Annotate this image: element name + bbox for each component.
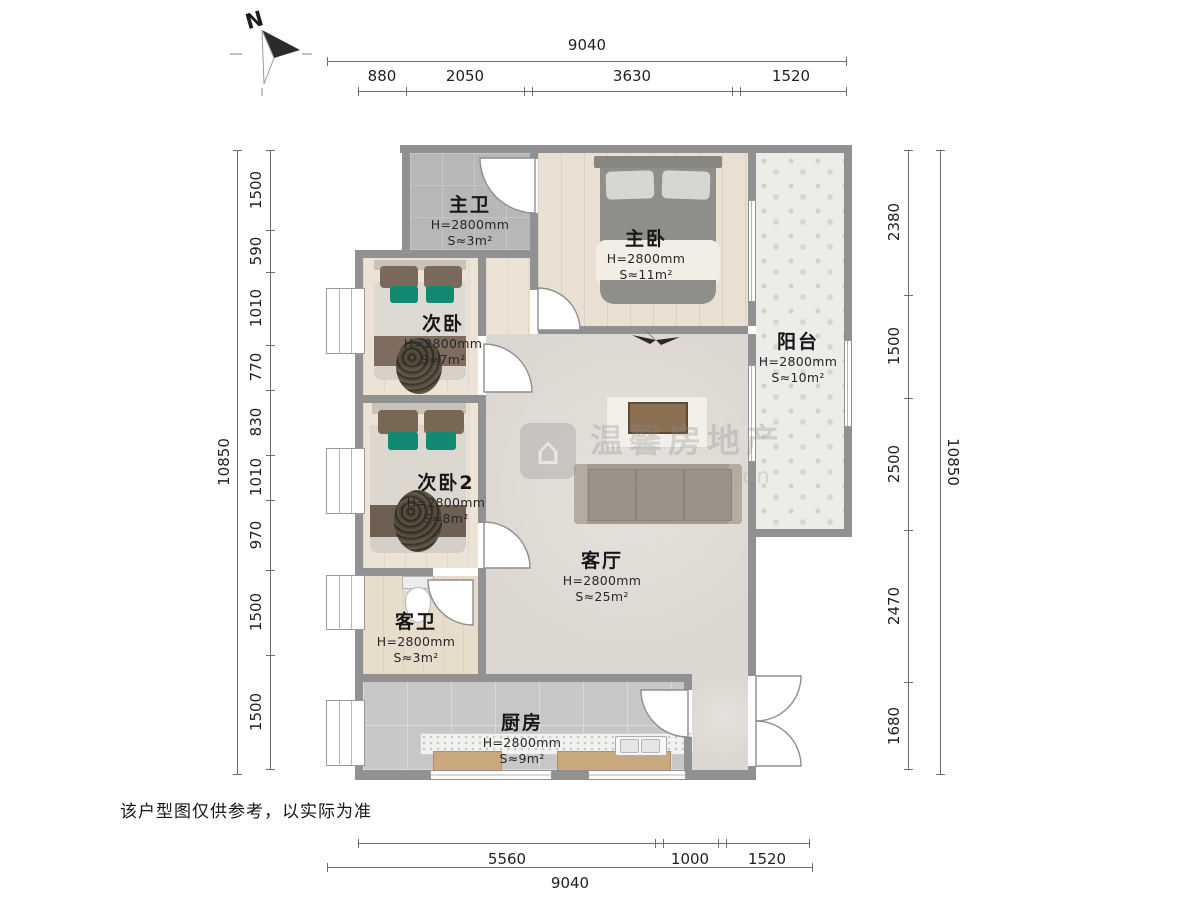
door-master-bedroom: [538, 288, 580, 330]
room-height: H=2800mm: [563, 573, 641, 589]
room-area: S≈7m²: [404, 352, 482, 368]
door-bedroom3: [484, 522, 530, 568]
room-label-master-bath: 主卫 H=2800mm S≈3m²: [431, 193, 509, 249]
plant-symbol-living: [630, 326, 682, 356]
room-area: S≈25m²: [563, 589, 641, 605]
room-label-master-bedroom: 主卧 H=2800mm S≈11m²: [607, 227, 685, 283]
room-label-bedroom3: 次卧2 H=2800mm S≈8m²: [407, 471, 485, 527]
room-name: 客卫: [377, 610, 455, 634]
room-name: 主卫: [431, 193, 509, 217]
room-height: H=2800mm: [377, 634, 455, 650]
room-name: 次卧2: [407, 471, 485, 495]
door-kitchen: [641, 690, 688, 737]
room-label-guest-bath: 客卫 H=2800mm S≈3m²: [377, 610, 455, 666]
room-area: S≈11m²: [607, 267, 685, 283]
watermark-text: 温馨房地产 www.fc100.cn: [590, 414, 785, 488]
room-area: S≈8m²: [407, 511, 485, 527]
watermark: ⌂ 温馨房地产 www.fc100.cn: [520, 414, 785, 488]
room-height: H=2800mm: [607, 251, 685, 267]
room-name: 厨房: [483, 711, 561, 735]
watermark-brand: 温馨房地产: [590, 414, 785, 462]
room-area: S≈9m²: [483, 751, 561, 767]
door-bedroom2: [484, 344, 532, 392]
room-height: H=2800mm: [407, 495, 485, 511]
room-name: 次卧: [404, 312, 482, 336]
disclaimer-text: 该户型图仅供参考，以实际为准: [120, 797, 372, 822]
room-label-balcony: 阳台 H=2800mm S≈10m²: [759, 330, 837, 386]
room-label-living-room: 客厅 H=2800mm S≈25m²: [563, 549, 641, 605]
room-area: S≈3m²: [377, 650, 455, 666]
room-height: H=2800mm: [404, 336, 482, 352]
room-height: H=2800mm: [759, 354, 837, 370]
room-name: 客厅: [563, 549, 641, 573]
room-name: 主卧: [607, 227, 685, 251]
door-entrance-lower: [756, 721, 801, 766]
room-height: H=2800mm: [483, 735, 561, 751]
floor-plan-canvas: 主卫 H=2800mm S≈3m² 主卧 H=2800mm S≈11m² 次卧 …: [0, 0, 1200, 900]
room-label-bedroom2: 次卧 H=2800mm S≈7m²: [404, 312, 482, 368]
room-label-kitchen: 厨房 H=2800mm S≈9m²: [483, 711, 561, 767]
room-height: H=2800mm: [431, 217, 509, 233]
room-area: S≈3m²: [431, 233, 509, 249]
room-name: 阳台: [759, 330, 837, 354]
door-entrance-upper: [756, 676, 801, 721]
watermark-url: www.fc100.cn: [590, 464, 785, 488]
room-area: S≈10m²: [759, 370, 837, 386]
compass-north-label: N: [243, 6, 267, 34]
north-arrow: N: [222, 2, 314, 98]
house-icon: ⌂: [520, 423, 576, 479]
